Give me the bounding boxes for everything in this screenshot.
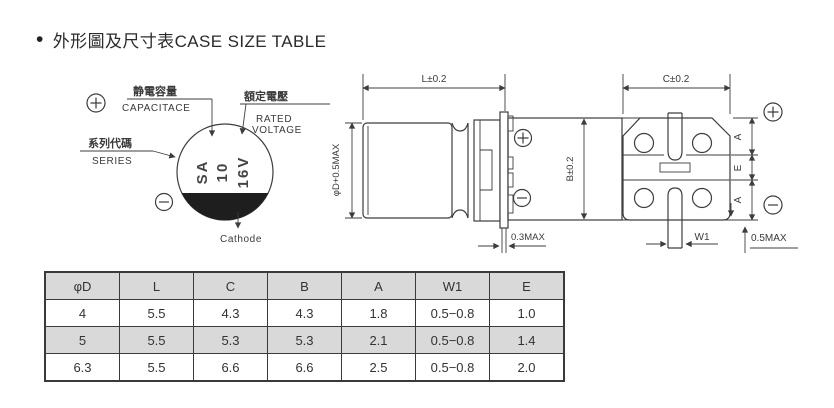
minus-terminal-icon [156, 194, 173, 211]
table-cell: 0.5−0.8 [416, 354, 490, 382]
table-cell: 0.5−0.8 [416, 300, 490, 327]
column-header-c: C [194, 272, 268, 300]
seat-block [474, 120, 500, 221]
marking-capacitance: 10 [214, 162, 231, 183]
cylinder-body [363, 123, 452, 218]
dim-height-label: B±0.2 [565, 157, 576, 182]
table-cell: 2.5 [342, 354, 416, 382]
case-size-table: φD L C B A W1 E 4 5.5 4.3 4.3 1.8 0.5−0.… [44, 271, 565, 382]
minus-terminal-icon [514, 190, 531, 207]
table-cell: 6.6 [194, 354, 268, 382]
table-cell: 4 [45, 300, 120, 327]
rated-voltage-label-en1: RATED [256, 114, 292, 125]
dim-standoff-label: 0.5MAX [751, 233, 787, 244]
plus-terminal-icon [515, 130, 532, 147]
column-header-w1: W1 [416, 272, 490, 300]
cathode-tab [668, 188, 682, 248]
table-cell: 1.4 [490, 327, 565, 354]
table-cell: 0.5−0.8 [416, 327, 490, 354]
series-label-en: SERIES [92, 156, 132, 167]
cathode-label: Cathode [220, 234, 262, 245]
plus-terminal-icon [87, 94, 105, 112]
plus-terminal-icon [764, 103, 782, 121]
table-cell: 6.3 [45, 354, 120, 382]
series-label-zh: 系列代碼 [88, 136, 132, 150]
table-cell: 2.0 [490, 354, 565, 382]
column-header-b: B [268, 272, 342, 300]
table-cell: 5.3 [268, 327, 342, 354]
table-cell: 4.3 [268, 300, 342, 327]
capacitor-bottom-view [623, 74, 798, 253]
dim-e-label: E [733, 164, 744, 171]
column-header-l: L [120, 272, 194, 300]
table-cell: 5.5 [120, 354, 194, 382]
table-row: 6.3 5.5 6.6 6.6 2.5 0.5−0.8 2.0 [45, 354, 564, 382]
anode-slot [668, 113, 682, 160]
dim-diameter-label: φD+0.5MAX [331, 143, 342, 196]
dim-length-label: L±0.2 [422, 74, 447, 85]
table-row: 4 5.5 4.3 4.3 1.8 0.5−0.8 1.0 [45, 300, 564, 327]
table-header-row: φD L C B A W1 E [45, 272, 564, 300]
capacitance-label-en: CAPACITACE [122, 103, 190, 114]
table-cell: 4.3 [194, 300, 268, 327]
rated-voltage-label-en2: VOLTAGE [252, 125, 302, 136]
minus-terminal-icon [764, 196, 782, 214]
marking-voltage: 16V [235, 156, 252, 189]
table-cell: 1.0 [490, 300, 565, 327]
table-cell: 1.8 [342, 300, 416, 327]
dim-lead-thickness-label: 0.3MAX [511, 232, 545, 243]
dim-a-top-label: A [733, 133, 744, 140]
dim-width-label: C±0.2 [663, 74, 690, 85]
datasheet-page: • 外形圖及尺寸表CASE SIZE TABLE [0, 0, 834, 408]
table-cell: 5.3 [194, 327, 268, 354]
table-cell: 5 [45, 327, 120, 354]
dimension-lines [623, 74, 798, 253]
cathode-band [182, 193, 268, 220]
technical-drawings: SA 10 16V 静電容量 CAPACITACE 額定電壓 RATED VOL… [0, 0, 834, 270]
marking-series: SA [194, 160, 211, 185]
lead-terminal [502, 228, 506, 253]
table-row: 5 5.5 5.3 5.3 2.1 0.5−0.8 1.4 [45, 327, 564, 354]
column-header-e: E [490, 272, 565, 300]
capacitor-side-view [345, 74, 640, 253]
column-header-phid: φD [45, 272, 120, 300]
table-cell: 5.5 [120, 327, 194, 354]
dim-w1-label: W1 [695, 232, 710, 243]
capacitance-label-zh: 静電容量 [133, 84, 177, 98]
dim-a-bottom-label: A [733, 196, 744, 203]
table-cell: 2.1 [342, 327, 416, 354]
table-cell: 6.6 [268, 354, 342, 382]
rated-voltage-label-zh: 額定電壓 [243, 89, 288, 103]
terminal-plate [500, 112, 508, 228]
table-cell: 5.5 [120, 300, 194, 327]
seat-plate-outline [623, 118, 730, 220]
column-header-a: A [342, 272, 416, 300]
